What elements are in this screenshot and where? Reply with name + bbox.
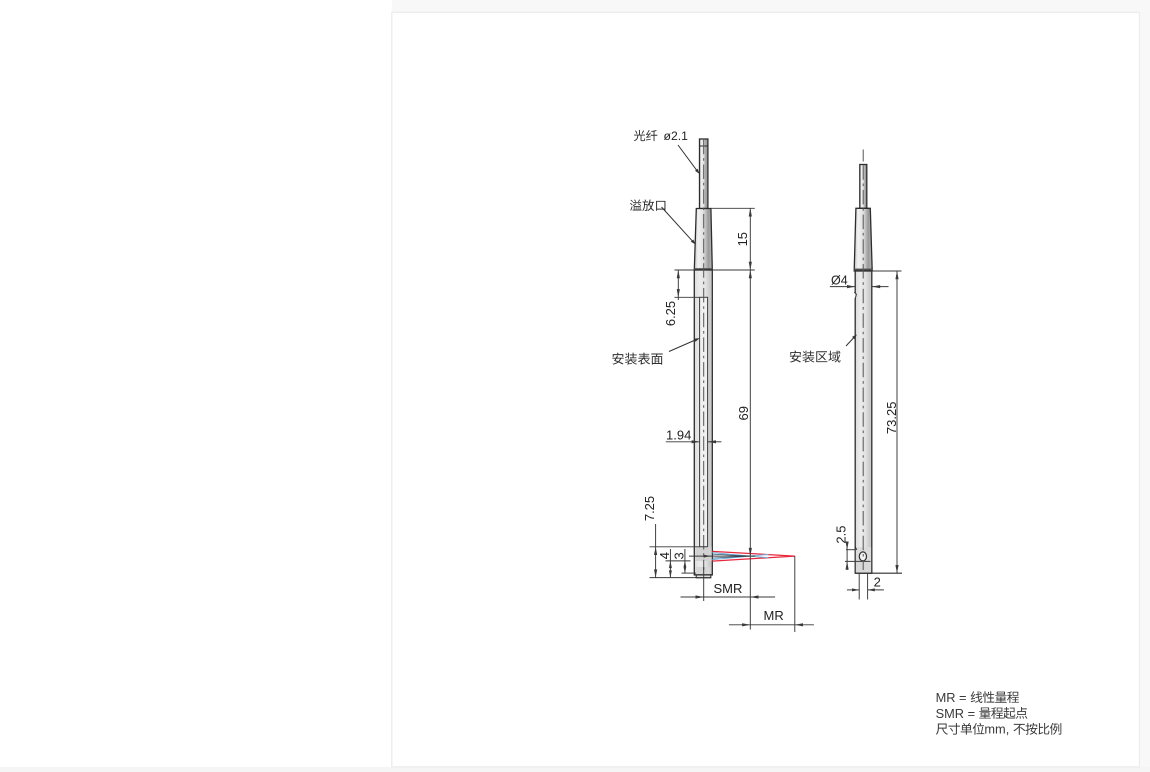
svg-text:7.25: 7.25 <box>642 496 657 521</box>
svg-text:SMR: SMR <box>714 581 743 596</box>
svg-text:73.25: 73.25 <box>884 402 899 435</box>
svg-text:3: 3 <box>671 552 686 559</box>
svg-text:2: 2 <box>874 575 881 590</box>
svg-text:Ø4: Ø4 <box>831 274 848 288</box>
svg-text:69: 69 <box>736 406 751 420</box>
svg-text:mm,: mm, <box>984 722 1009 737</box>
svg-text:15: 15 <box>735 232 750 246</box>
svg-text:2.5: 2.5 <box>834 526 849 544</box>
svg-text:MR: MR <box>764 608 784 623</box>
svg-text:SMR =: SMR = <box>936 706 975 721</box>
svg-text:4: 4 <box>657 552 672 559</box>
svg-text:MR =: MR = <box>936 690 967 705</box>
svg-text:1.94: 1.94 <box>666 428 691 443</box>
svg-text:6.25: 6.25 <box>663 301 678 326</box>
svg-text:ø2.1: ø2.1 <box>664 129 689 143</box>
